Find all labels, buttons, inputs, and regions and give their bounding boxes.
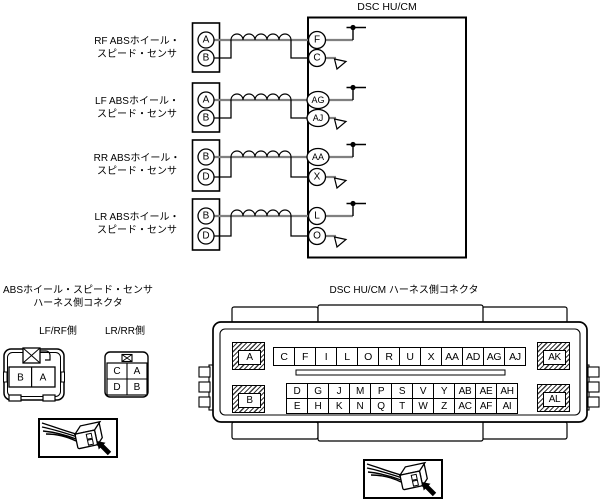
pin-cell: F <box>294 347 316 366</box>
pin-cell: AB <box>454 383 476 399</box>
pin-cell: N <box>349 398 371 414</box>
pin-cell: AE <box>475 383 497 399</box>
pin-cell: O <box>357 347 379 366</box>
sensor-pin-label: D <box>202 231 209 242</box>
pin-cell: W <box>412 398 434 414</box>
pin-cell: G <box>307 383 329 399</box>
dsc-hucm-title: DSC HU/CM <box>308 1 466 13</box>
pin-cell: R <box>378 347 400 366</box>
pin-cell: AG <box>483 347 505 366</box>
hu-pin-label: AA <box>312 152 324 162</box>
hu-pin-row-mid: D G J M P S V Y AB AE AH <box>286 383 518 399</box>
pin-cell: T <box>391 398 413 414</box>
lrrr-connector: C A D B <box>104 350 150 399</box>
hu-connector-title: DSC HU/CM ハーネス側コネクタ <box>254 284 554 297</box>
pin-cell: Y <box>433 383 455 399</box>
abs-connector-title-line1: ABSホイール・スピード・センサ <box>0 284 156 297</box>
hu-pin-label: L <box>314 211 320 222</box>
latch-icon <box>122 355 132 362</box>
pin-cell: AH <box>496 383 518 399</box>
wire <box>291 157 308 177</box>
hu-pin-row-bottom: E H K N Q T W Z AC AF AI <box>286 398 518 414</box>
pin-cell: C <box>273 347 295 366</box>
pin-cell: AC <box>454 398 476 414</box>
wire <box>291 40 308 58</box>
dsc-hucm-box <box>308 18 466 258</box>
pin-cell: AI <box>496 398 518 414</box>
sensor-pin-label: B <box>203 113 210 124</box>
sensor-label-line2: スピード・センサ <box>82 108 192 121</box>
sensor-pin-label: A <box>203 35 210 46</box>
lrrr-pin: A <box>134 366 141 377</box>
pin-cell: E <box>286 398 308 414</box>
arrow-icon <box>422 482 436 496</box>
pin-cell: M <box>349 383 371 399</box>
pin-cell: Q <box>370 398 392 414</box>
sensor-label-line2: スピード・センサ <box>82 48 192 61</box>
sensor-label-line2: スピード・センサ <box>82 165 192 178</box>
sensor-label-lr: LR ABSホイール・ スピード・センサ <box>82 211 192 237</box>
pin-cell: J <box>328 383 350 399</box>
connector-photo-icon <box>40 420 116 456</box>
pin-cell: K <box>328 398 350 414</box>
pin-cell: S <box>391 383 413 399</box>
corner-pin-ak: AK <box>537 342 570 370</box>
pin-cell: AD <box>462 347 484 366</box>
sensor-label-line1: LR ABSホイール・ <box>82 211 192 224</box>
corner-pin-ak-label: AK <box>543 350 566 365</box>
wiring-diagram-page: A B F C A B <box>0 0 602 499</box>
hu-pin-row-top: C F I L O R U X AA AD AG AJ <box>273 347 526 366</box>
corner-pin-al: AL <box>537 384 570 412</box>
corner-pin-a-label: A <box>238 350 261 365</box>
wire <box>291 100 307 118</box>
pin-cell: U <box>399 347 421 366</box>
pin-cell: D <box>286 383 308 399</box>
hu-pin-label: C <box>313 53 320 64</box>
sensor-label-rf: RF ABSホイール・ スピード・センサ <box>82 35 192 61</box>
hu-pin-label: AJ <box>313 113 324 123</box>
pin-cell: X <box>420 347 442 366</box>
hu-connector-body <box>196 298 602 448</box>
connector-photo-inset-left <box>38 418 118 458</box>
sensor-label-line1: RR ABSホイール・ <box>82 152 192 165</box>
pin-cell: AA <box>441 347 463 366</box>
sensor-label-lf: LF ABSホイール・ スピード・センサ <box>82 95 192 121</box>
lfrf-pin-right: A <box>40 373 47 384</box>
wire <box>291 216 308 236</box>
lrrr-label: LR/RR側 <box>77 325 173 338</box>
arrow-icon <box>97 441 111 455</box>
corner-pin-a: A <box>232 342 265 370</box>
pin-cell: I <box>315 347 337 366</box>
lrrr-pin: C <box>113 366 120 377</box>
corner-pin-b: B <box>232 385 265 413</box>
pin-cell: Z <box>433 398 455 414</box>
corner-pin-b-label: B <box>238 393 261 408</box>
sensor-pin-label: B <box>203 152 210 163</box>
pin-cell: H <box>307 398 329 414</box>
corner-pin-al-label: AL <box>543 392 566 407</box>
pin-cell: AJ <box>504 347 526 366</box>
pin-cell: P <box>370 383 392 399</box>
pin-cell: V <box>412 383 434 399</box>
sensor-label-line1: LF ABSホイール・ <box>82 95 192 108</box>
sensor-label-line1: RF ABSホイール・ <box>82 35 192 48</box>
abs-connector-title-line2: ハーネス側コネクタ <box>0 297 156 310</box>
sensor-pin-label: A <box>203 95 210 106</box>
sensor-pin-label: D <box>202 172 209 183</box>
sensor-pin-label: B <box>203 53 210 64</box>
hu-pin-label: AG <box>311 95 324 105</box>
lrrr-pin: B <box>134 382 141 393</box>
hu-pin-label: F <box>314 35 320 46</box>
connector-photo-icon <box>365 461 441 497</box>
lfrf-connector: B A <box>3 344 67 404</box>
sensor-pin-label: B <box>203 211 210 222</box>
hu-pin-label: O <box>313 231 321 242</box>
lrrr-pin: D <box>113 382 120 393</box>
sensor-label-line2: スピード・センサ <box>82 224 192 237</box>
lfrf-pin-left: B <box>17 373 24 384</box>
connector-photo-inset-right <box>363 459 443 499</box>
pin-cell: L <box>336 347 358 366</box>
pin-cell: AF <box>475 398 497 414</box>
sensor-label-rr: RR ABSホイール・ スピード・センサ <box>82 152 192 178</box>
hu-pin-label: X <box>314 172 321 183</box>
